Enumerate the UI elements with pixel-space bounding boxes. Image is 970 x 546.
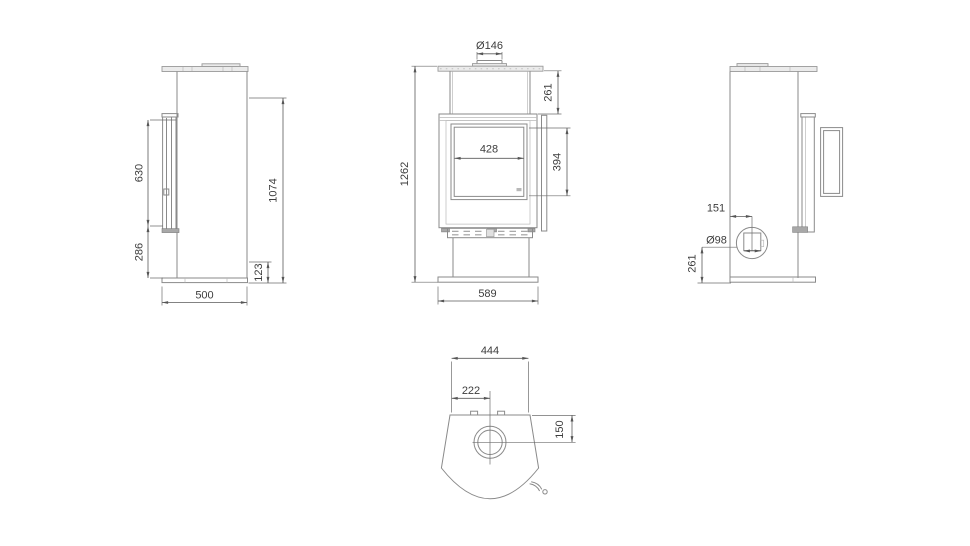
right-top-collar (737, 64, 768, 67)
dim-glass-height: 394 (552, 153, 564, 171)
dim-door-glass-height: 630 (134, 164, 146, 182)
dim-depth: 500 (195, 290, 213, 302)
front-door-top-frame (439, 118, 537, 121)
front-door-inner-frame (446, 121, 530, 225)
front-glass-frame (451, 124, 527, 200)
stove-dimension-drawing: 630 286 1074 123 500 Ø146 428 (0, 0, 970, 546)
dim-inlet-axis-height: 261 (687, 254, 699, 272)
front-hinge-foot-right (528, 228, 535, 232)
dim-top-section-height: 261 (543, 83, 555, 101)
dim-flue-center-offset: 222 (462, 385, 480, 397)
right-door-profile (802, 117, 814, 232)
dim-glass-width: 428 (480, 144, 498, 156)
left-body-outline (177, 72, 247, 279)
dim-body-back-width: 444 (481, 345, 499, 357)
front-base (438, 277, 538, 282)
dim-base-height: 123 (253, 263, 265, 281)
top-door-handle-knob (543, 490, 547, 494)
dim-total-height: 1262 (399, 162, 411, 186)
front-pedestal (453, 238, 529, 277)
left-door-top-cap (162, 114, 178, 117)
dim-flue-center-from-back: 150 (554, 420, 566, 438)
left-base (162, 278, 248, 283)
front-handle-bar (542, 115, 547, 231)
front-glass (454, 127, 524, 196)
technical-drawing-canvas: 630 286 1074 123 500 Ø146 428 (0, 0, 970, 546)
view-front: Ø146 428 261 394 1262 (399, 40, 571, 305)
front-hinge-foot-left (442, 228, 450, 232)
view-left-side: 630 286 1074 123 500 (134, 64, 287, 306)
top-back-bracket-left (471, 411, 478, 415)
dim-air-inlet-diameter: Ø98 (706, 235, 727, 247)
right-body-outline (730, 72, 798, 279)
left-door-profile (163, 117, 177, 230)
front-upper-chamber-inner (453, 71, 528, 114)
right-door-top-cap (801, 114, 816, 117)
right-side-panel-inner (824, 131, 840, 194)
top-door-handle (530, 482, 542, 491)
view-top: 444 222 150 (441, 345, 575, 499)
front-upper-chamber (450, 71, 530, 114)
top-back-bracket-right (498, 411, 505, 415)
left-door-bottom-cap (162, 229, 179, 233)
dim-width: 589 (478, 288, 496, 300)
right-door-bottom-bracket (793, 227, 808, 233)
view-right-side: Ø98 151 261 (687, 64, 843, 283)
dim-lower-section-height: 286 (134, 243, 146, 261)
front-vent-center-block (487, 229, 495, 236)
left-base-ticks (185, 278, 227, 283)
dim-flue-diameter: Ø146 (476, 40, 503, 52)
dim-inlet-offset-from-back: 151 (707, 203, 725, 215)
right-top-plate (730, 67, 817, 72)
left-top-plate (162, 67, 248, 72)
front-glass-logo (517, 188, 522, 191)
right-base (730, 277, 816, 282)
dim-upper-reference-height: 1074 (268, 178, 280, 202)
